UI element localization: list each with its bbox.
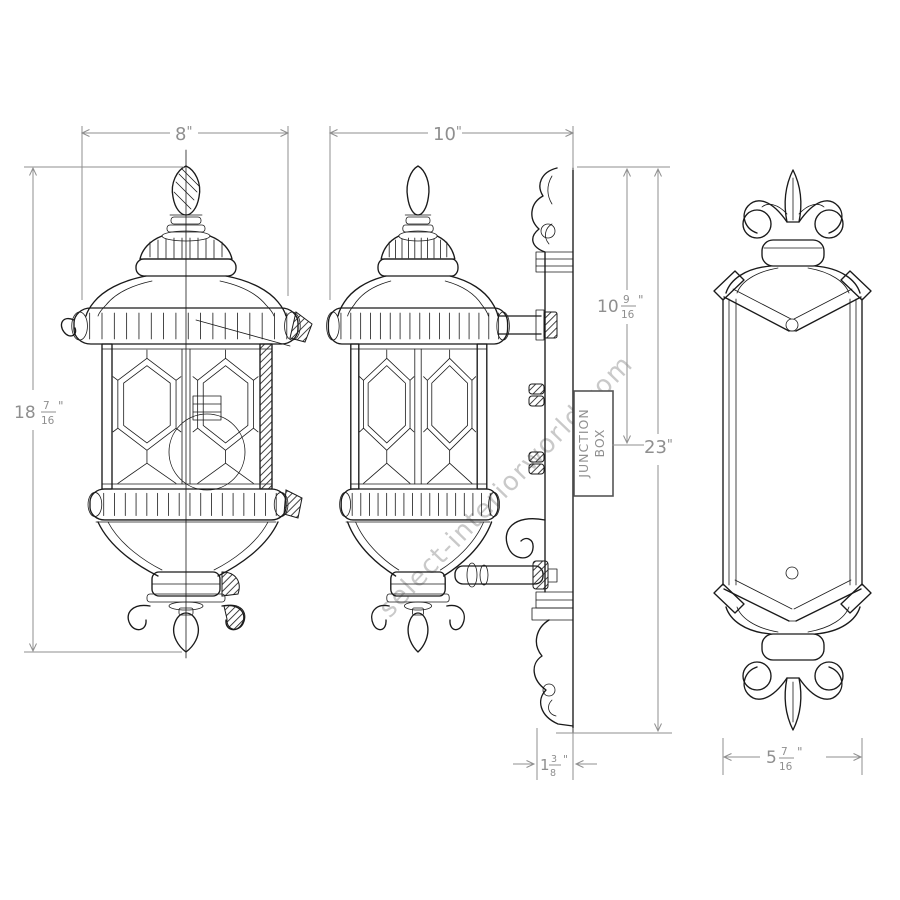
fraction-numerator: 7 [43, 400, 50, 412]
svg-text:23": 23" [644, 437, 673, 458]
dim-backplate-width-unit: " [797, 745, 803, 759]
fraction-denominator: 16 [621, 309, 635, 321]
dim-wall-depth: 1 3 8 " [513, 728, 597, 780]
dim-wall-depth-whole: 1 [540, 756, 550, 774]
fraction-denominator: 16 [779, 761, 793, 773]
fraction-denominator: 16 [41, 415, 55, 427]
dim-front-height-unit: " [58, 399, 64, 413]
drawing-page: select-interiorworld.com 8" [0, 0, 900, 900]
dim-side-width-value: 10 [433, 124, 456, 145]
dim-backplate-width-whole: 5 [766, 748, 777, 768]
dim-wall-depth-unit: " [563, 753, 568, 766]
junction-box-label-2: BOX [592, 429, 607, 458]
svg-text:10": 10" [433, 124, 462, 145]
lamp-bulb [169, 396, 245, 490]
backplate-bottom-fleur [714, 580, 871, 730]
screw-hole-top [786, 319, 798, 331]
dim-overall-height-value: 23 [644, 437, 667, 458]
junction-box: JUNCTION BOX [574, 391, 613, 496]
dim-front-width-value: 8 [175, 124, 186, 145]
backplate-top-fleur [714, 170, 871, 331]
dim-front-width-unit: " [186, 125, 192, 140]
dim-front-width: 8" [82, 124, 288, 300]
dim-side-width: 10" [330, 124, 573, 300]
svg-text:8": 8" [175, 124, 192, 145]
dim-side-width-unit: " [456, 125, 462, 140]
fraction-denominator: 8 [550, 768, 556, 779]
dim-front-height-whole: 18 [14, 403, 36, 423]
dim-top-to-junction-unit: " [638, 293, 644, 307]
front-section-view: 8" 18 7 16 " [14, 124, 312, 658]
fraction-numerator: 9 [623, 294, 630, 306]
section-hatching [61, 169, 312, 629]
fraction-numerator: 7 [781, 746, 788, 758]
dim-front-height: 18 7 16 " [14, 167, 184, 652]
dim-backplate-width: 5 7 16 " [723, 738, 862, 775]
side-view: JUNCTION BOX 10" [327, 124, 673, 780]
screw-hole-bottom [786, 567, 798, 579]
fraction-numerator: 3 [551, 754, 557, 765]
junction-box-label-1: JUNCTION [576, 408, 591, 478]
backplate-view: 5 7 16 " [714, 170, 871, 775]
dim-top-to-junction-whole: 10 [597, 297, 619, 317]
technical-drawing: select-interiorworld.com 8" [0, 0, 900, 900]
dim-overall-height-unit: " [667, 438, 673, 453]
